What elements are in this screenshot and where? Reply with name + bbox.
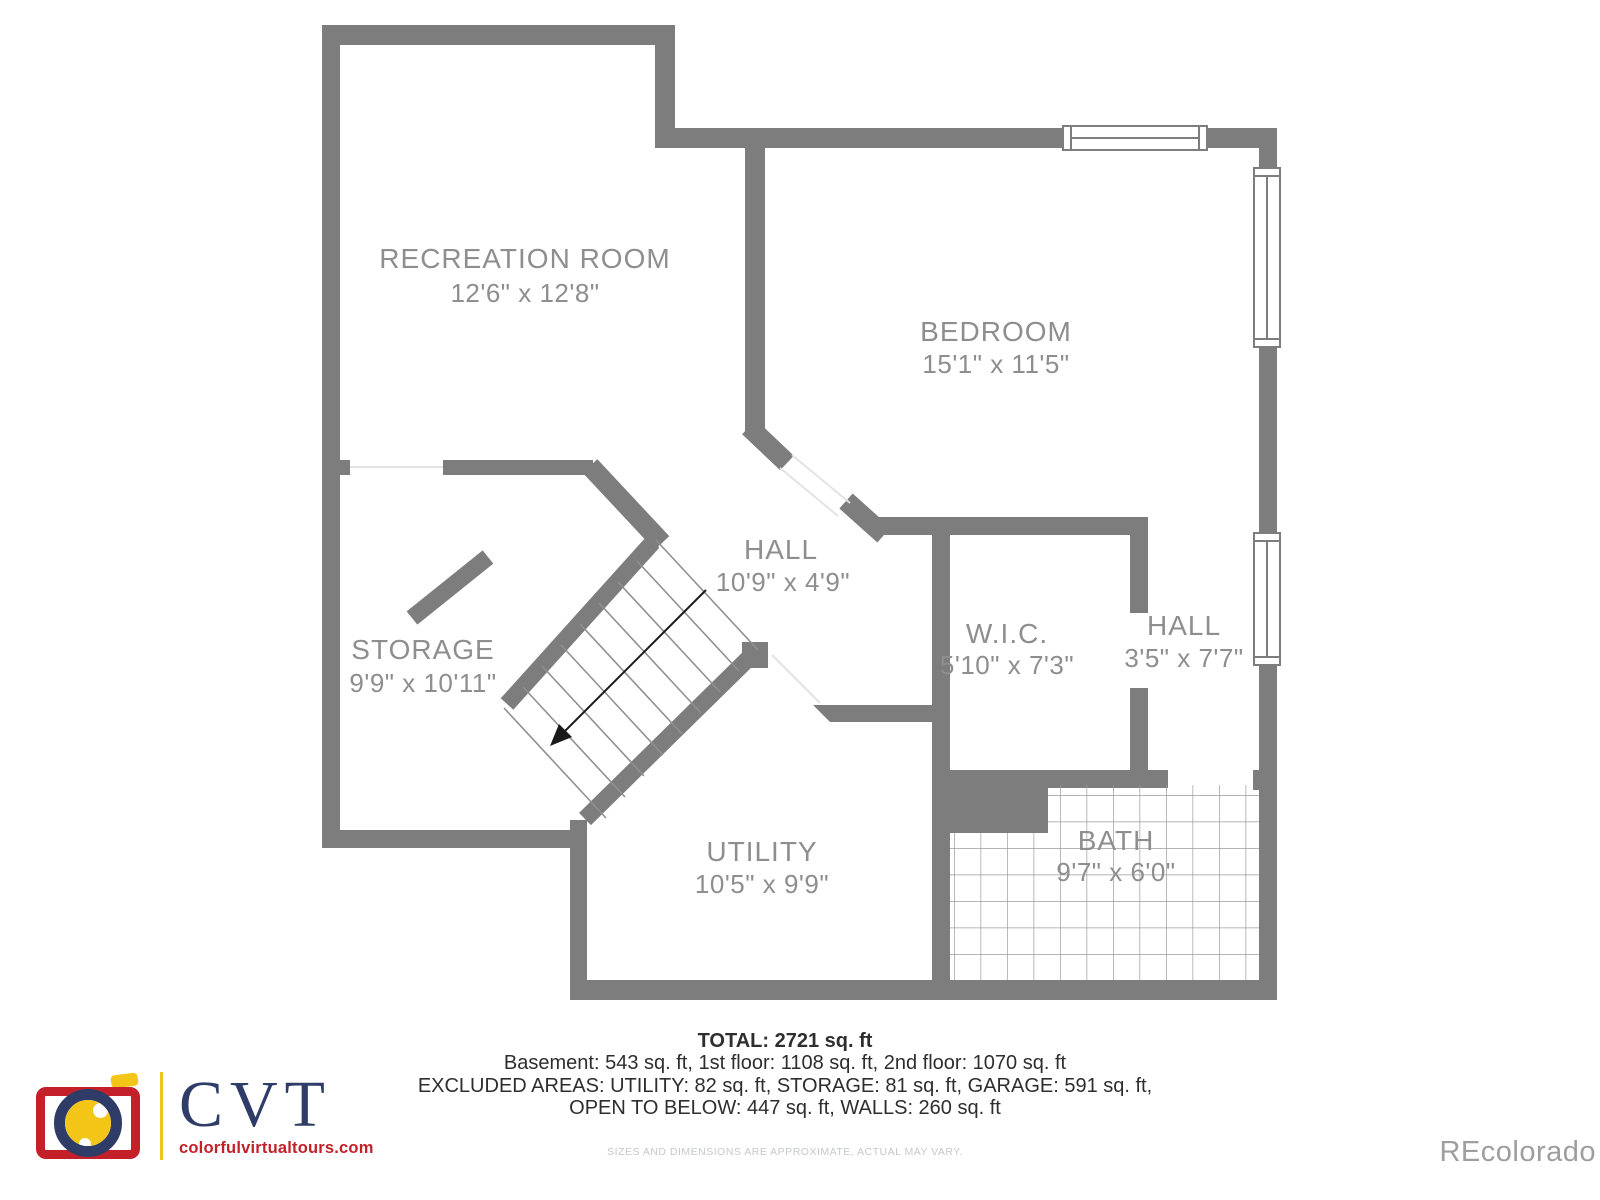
wall-segment <box>322 25 340 848</box>
storage-angled-wall <box>412 557 488 618</box>
room-label-bedroom: BEDROOM <box>920 316 1072 347</box>
camera-icon <box>36 1087 140 1159</box>
room-label-bath: BATH <box>1078 825 1155 856</box>
wall-segment <box>1130 517 1148 613</box>
wall-segment <box>322 25 675 45</box>
wall-segment <box>749 427 787 463</box>
room-label-storage: STORAGE <box>351 634 494 665</box>
room-label-utility: UTILITY <box>706 836 817 867</box>
windows <box>1063 126 1280 665</box>
wall-segment <box>655 128 1063 148</box>
wall-segment <box>322 460 350 475</box>
wall-segment <box>876 517 1148 535</box>
stair-wall <box>585 652 755 819</box>
wall-segment <box>932 535 950 980</box>
wall-segment <box>443 460 593 475</box>
wall-segment <box>1259 345 1277 535</box>
room-dims-storage: 9'9" x 10'11" <box>349 668 496 698</box>
logo-wordmark: CVT colorfulvirtualtours.com <box>179 1075 374 1158</box>
window-top <box>1063 126 1207 150</box>
room-dims-utility: 10'5" x 9'9" <box>695 869 829 899</box>
door-threshold <box>780 468 838 516</box>
room-label-wic: W.I.C. <box>966 618 1048 649</box>
window-right-lower <box>1254 533 1280 665</box>
room-dims-recreation: 12'6" x 12'8" <box>450 278 599 308</box>
cvt-logo: CVT colorfulvirtualtours.com <box>36 1072 374 1160</box>
wall-segment <box>590 466 662 543</box>
lens-notch <box>79 1138 91 1146</box>
wall-segment <box>745 148 765 435</box>
wall-segment <box>1130 688 1148 772</box>
wall-segment <box>1259 128 1277 172</box>
lens-glint <box>93 1103 108 1118</box>
room-label-hall-main: HALL <box>744 534 818 565</box>
wall-mass <box>950 770 1048 833</box>
floor-plan-drawing: RECREATION ROOM 12'6" x 12'8" BEDROOM 15… <box>0 0 1600 1200</box>
wall-segment <box>813 705 932 722</box>
camera-lens-center <box>65 1100 111 1146</box>
floorplan-page: { "plan": { "level": "basement", "rooms"… <box>0 0 1600 1200</box>
room-label-recreation: RECREATION ROOM <box>379 243 670 274</box>
door-threshold <box>792 455 850 503</box>
room-dims-hall-right: 3'5" x 7'7" <box>1124 643 1243 673</box>
camera-lens-ring <box>54 1089 122 1157</box>
logo-divider <box>160 1072 163 1160</box>
logo-url: colorfulvirtualtours.com <box>179 1139 374 1158</box>
room-dims-bath: 9'7" x 6'0" <box>1056 857 1175 887</box>
window-right-upper <box>1254 168 1280 347</box>
wall-segment <box>570 820 587 1000</box>
wall-segment <box>322 830 587 848</box>
room-label-hall-right: HALL <box>1147 610 1221 641</box>
total-area-text: TOTAL: 2721 sq. ft <box>0 1030 1570 1052</box>
room-dims-hall-main: 10'9" x 4'9" <box>716 567 850 597</box>
room-dims-wic: 5'10" x 7'3" <box>940 650 1074 680</box>
door-threshold <box>772 655 820 703</box>
recolorado-watermark: REcolorado <box>1439 1136 1596 1169</box>
logo-text: CVT <box>179 1075 374 1135</box>
wall-segment <box>1259 663 1277 1000</box>
wall-segment <box>655 25 675 137</box>
wall-segment <box>570 980 1277 1000</box>
room-dims-bedroom: 15'1" x 11'5" <box>922 349 1069 379</box>
